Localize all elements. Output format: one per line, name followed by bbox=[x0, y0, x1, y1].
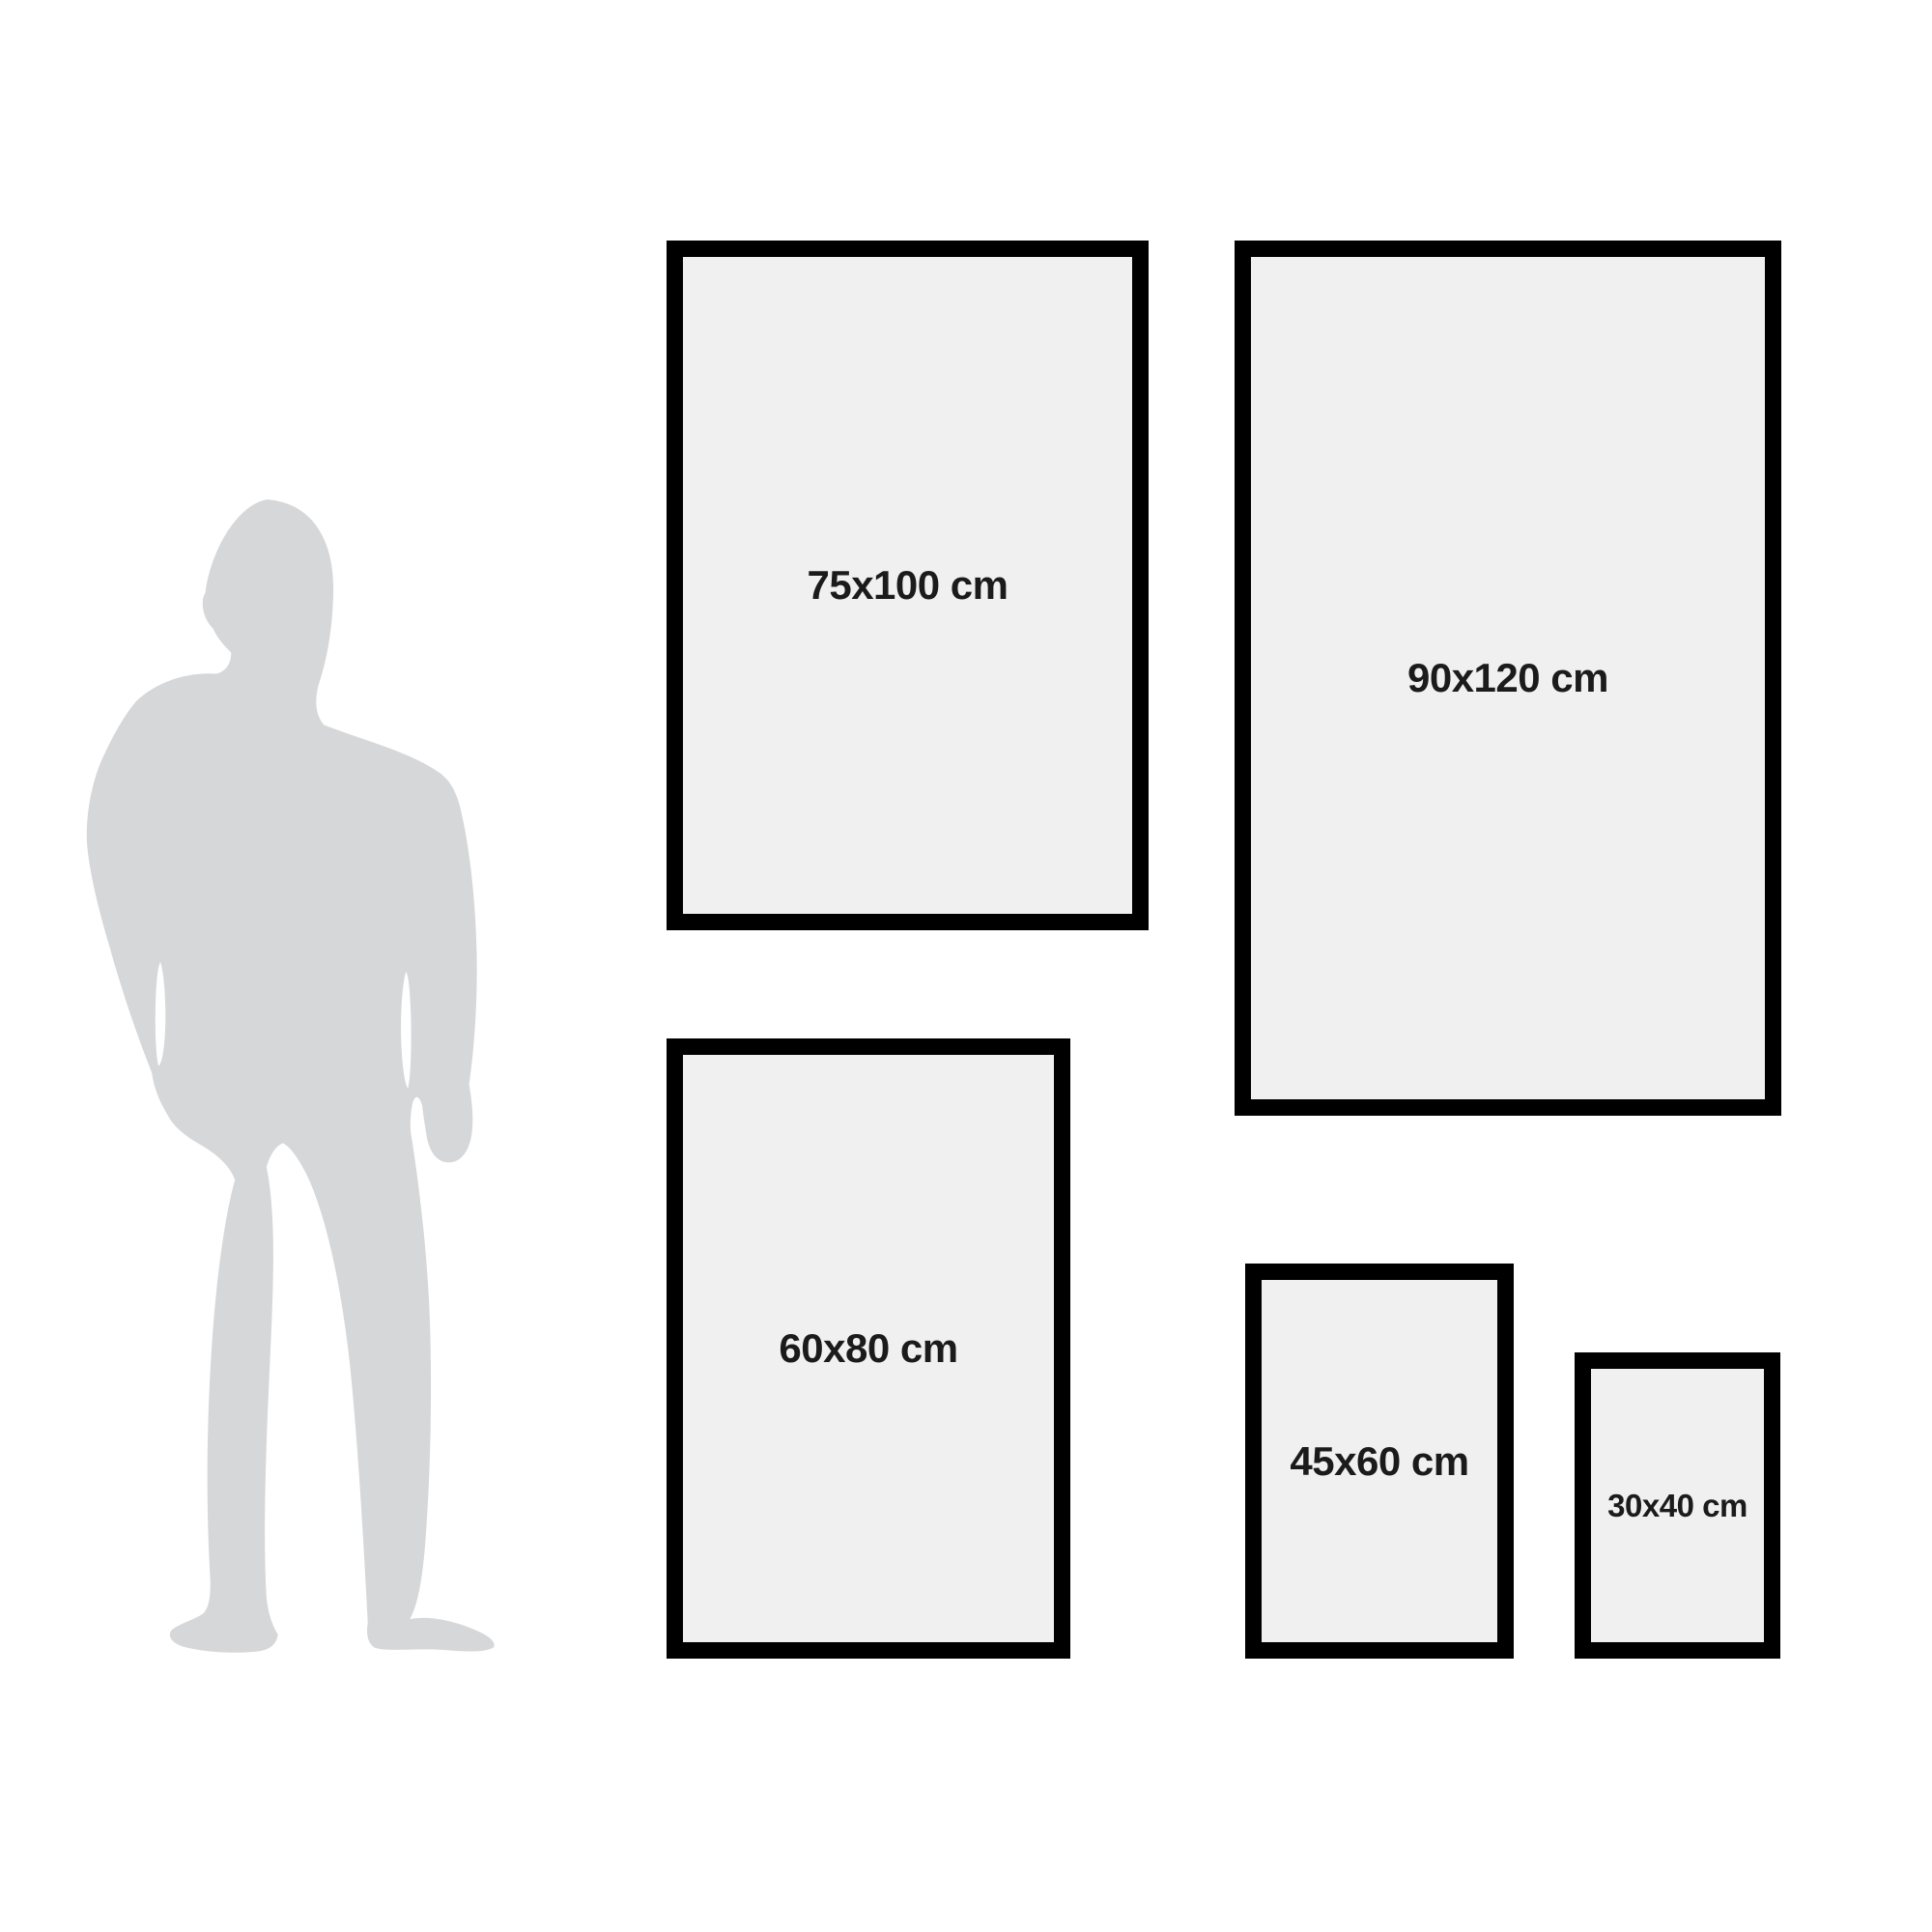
frame-60x80: 60x80 cm bbox=[667, 1038, 1070, 1659]
frame-90x120-label: 90x120 cm bbox=[1407, 655, 1608, 701]
man-silhouette-body bbox=[87, 499, 495, 1653]
frame-75x100: 75x100 cm bbox=[667, 241, 1149, 930]
frame-60x80-label: 60x80 cm bbox=[779, 1325, 957, 1372]
frame-45x60-label: 45x60 cm bbox=[1290, 1438, 1468, 1485]
frame-45x60: 45x60 cm bbox=[1245, 1264, 1514, 1659]
frame-75x100-label: 75x100 cm bbox=[807, 562, 1008, 609]
frame-30x40: 30x40 cm bbox=[1575, 1352, 1780, 1659]
frame-30x40-label: 30x40 cm bbox=[1607, 1488, 1747, 1524]
size-comparison-diagram: 75x100 cm 90x120 cm 60x80 cm 45x60 cm 30… bbox=[0, 0, 1932, 1932]
frame-90x120: 90x120 cm bbox=[1235, 241, 1781, 1116]
man-silhouette-icon bbox=[80, 497, 520, 1654]
